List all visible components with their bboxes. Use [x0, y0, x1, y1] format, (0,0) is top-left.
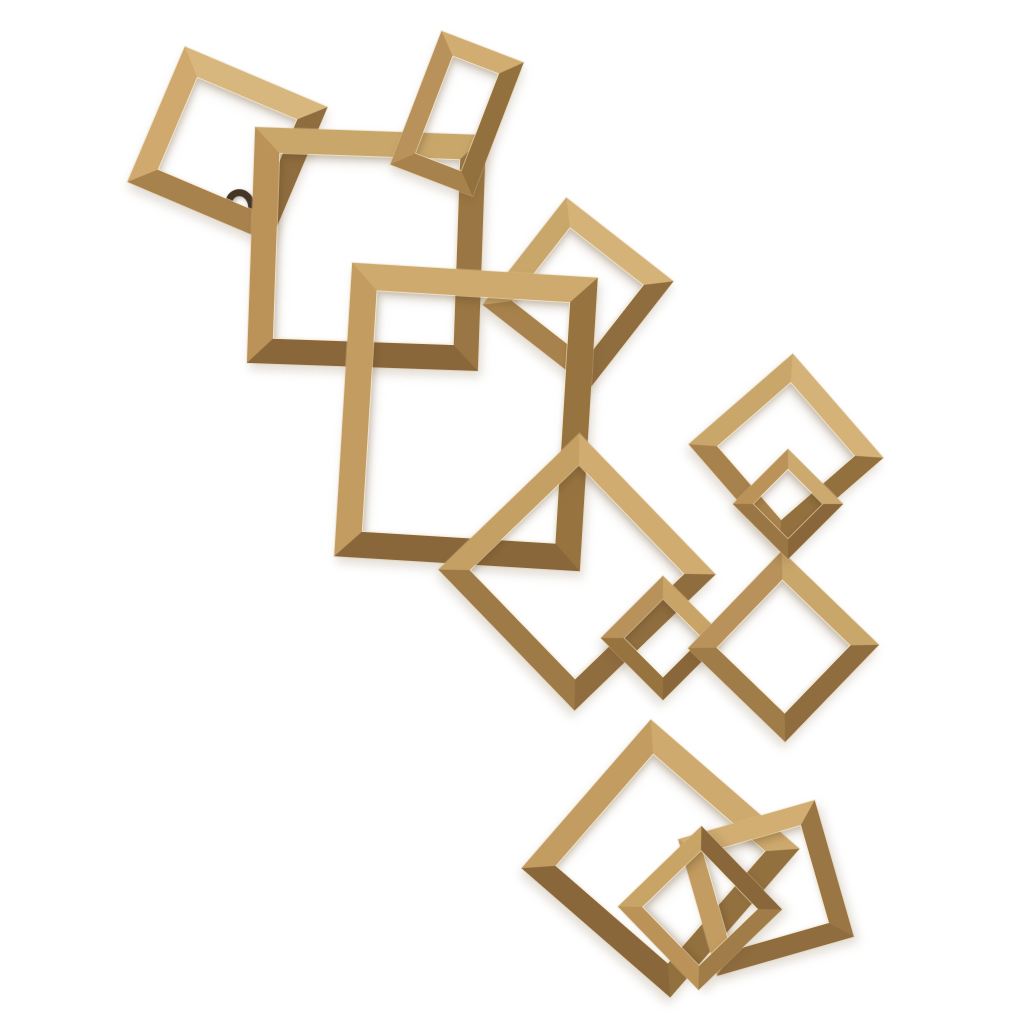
product-photo — [0, 0, 1024, 1024]
diamond-bottom-small-inner-edge — [642, 850, 758, 966]
diamond-right-lower-inner-edge — [716, 579, 850, 713]
square-right-link-inner-edge — [753, 469, 824, 540]
diamond-mid-small-inner-edge — [623, 598, 702, 677]
rect-top-small-inner-edge — [415, 55, 499, 171]
frames-layer — [0, 0, 1024, 1024]
diamond-right-lower — [688, 551, 879, 742]
rect-top-small — [390, 30, 523, 195]
